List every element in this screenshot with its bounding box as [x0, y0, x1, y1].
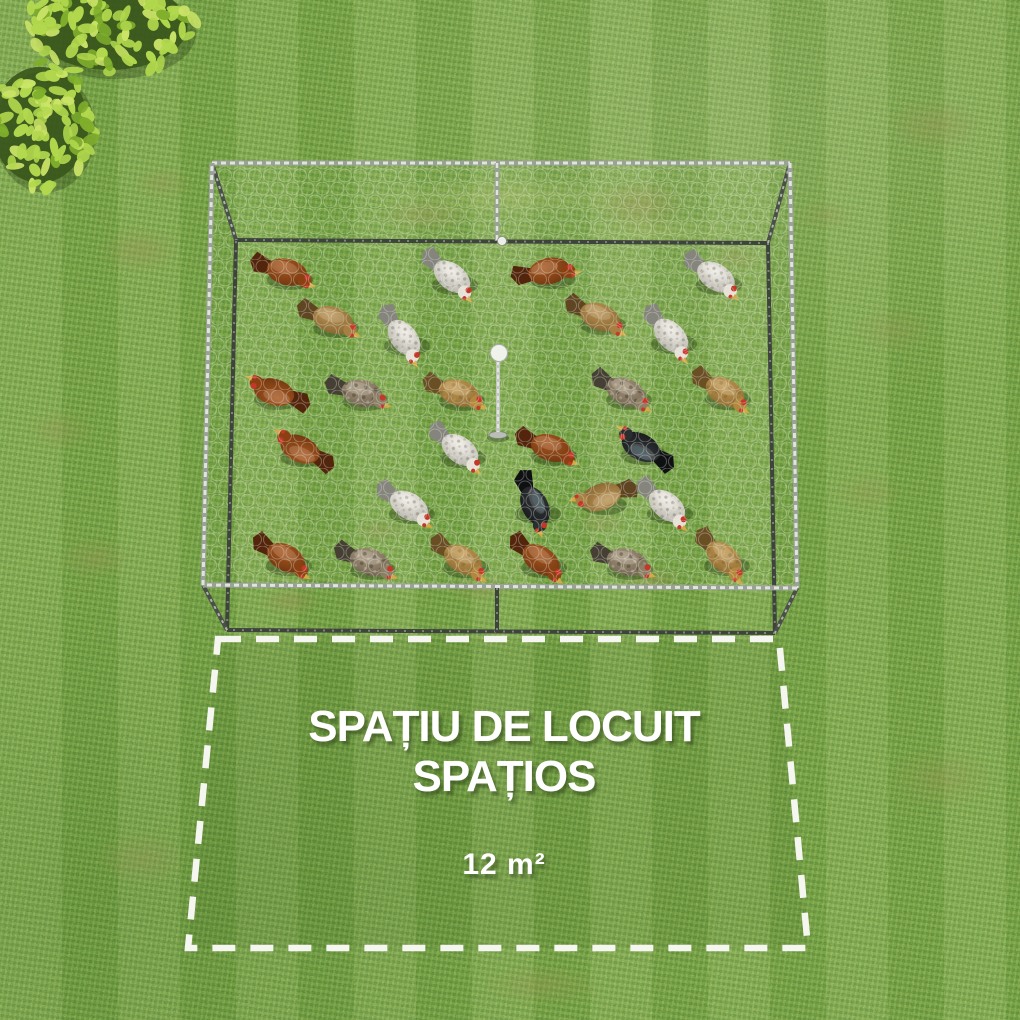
dashed-area-outline [188, 639, 808, 948]
chicken-run-scene [0, 0, 1020, 1020]
product-image: SPAȚIU DE LOCUIT SPAȚIOS 12 m² [0, 0, 1020, 1020]
